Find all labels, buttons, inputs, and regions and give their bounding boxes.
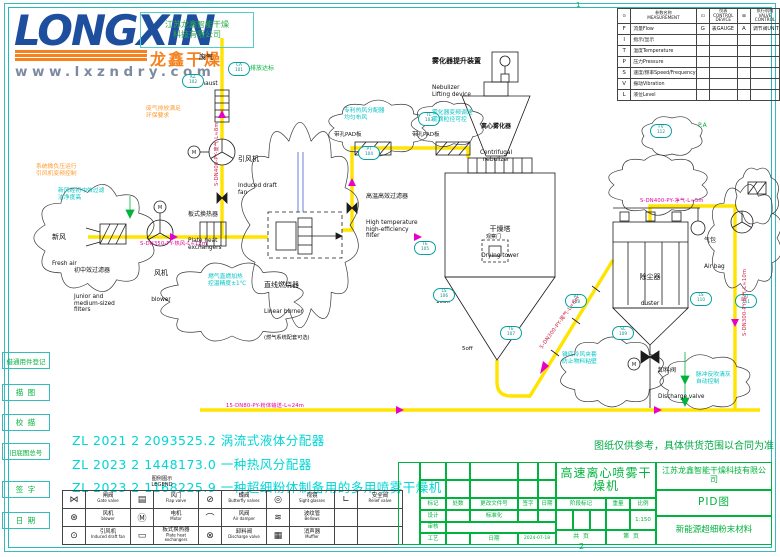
- logo-stripe: [15, 54, 147, 57]
- code-letter: A: [737, 23, 750, 34]
- margin-label-tracing: 描 图: [2, 384, 50, 401]
- code-letter: F: [618, 23, 631, 34]
- titleblock-company: 江苏龙鑫智能干燥科技有限公司: [656, 462, 772, 490]
- blower-icon: ⊛: [63, 509, 86, 527]
- margin-label-date: 日 期: [2, 512, 50, 529]
- label-duster: 除尘器 duster: [630, 254, 670, 327]
- titleblock-blank: [470, 462, 518, 480]
- titleblock-project: 新能源超细粉末材料: [656, 516, 772, 545]
- patent-line: ZL 2023 2 1448173.0 一种热风分配器: [72, 454, 312, 473]
- table-row: ⊙ 参数名称 MEASUREMENT ⊡ 仪表 CONTROL DEVICE ⊠…: [618, 9, 780, 24]
- label-blower: 风机 blower: [144, 250, 178, 323]
- col-measurement: 参数名称 MEASUREMENT: [631, 9, 696, 24]
- titleblock-doc-type: PID图: [656, 490, 772, 516]
- instrument-tag: SC 109: [612, 326, 634, 340]
- titleblock-blank: [538, 462, 556, 480]
- empty-cell: [751, 78, 780, 89]
- annotation: 锥底冷风夹套 防止物料粘壁: [562, 352, 597, 366]
- label-plate-hx: 板式换热器 Plate heat exchangers: [188, 192, 246, 271]
- code-meaning: 流量Flow: [631, 23, 696, 34]
- empty-cell: [751, 45, 780, 56]
- code-letter: G: [696, 23, 709, 34]
- titleblock-total-pages: 共 页: [556, 530, 606, 545]
- legend-cell: 蝶阀Butterfly valves: [222, 491, 267, 509]
- legend-cell: 风机blower: [86, 509, 131, 527]
- titleblock-design: 设计: [420, 510, 446, 522]
- empty-cell: [737, 56, 750, 67]
- code-letter: V: [618, 78, 631, 89]
- titleblock-blank: [446, 480, 470, 498]
- empty-cell: [696, 67, 709, 78]
- table-row: L 液位Level: [618, 89, 780, 100]
- label-off2: 5off: [462, 346, 473, 352]
- code-letter: S: [618, 67, 631, 78]
- patent-line: ZL 2021 2 2093525.2 涡流式液体分配器: [72, 430, 325, 449]
- code-meaning: 温度Temperature: [631, 45, 696, 56]
- code-meaning: 表GAUGE: [709, 23, 737, 34]
- titleblock-hdr-count: 处数: [446, 498, 470, 510]
- code-letter: P: [618, 56, 631, 67]
- pipe-tag: S-DN300-PY-尾气-L≈10m: [741, 269, 748, 336]
- annotation: 燃气直燃加热 控温精度±1℃: [208, 274, 246, 288]
- code-meaning: 液位Level: [631, 89, 696, 100]
- label-burner: 直线燃烧器 Linear burner (燃气系统配套可选): [264, 262, 348, 360]
- legend-cell: 电机Motor: [154, 509, 199, 527]
- logo-stripe: [15, 50, 147, 53]
- titleblock-stage-cell: [556, 510, 573, 530]
- empty-cell: [751, 34, 780, 45]
- legend-cell: 消声器Muffler: [290, 527, 335, 545]
- margin-label-registration: 借通用件登记: [2, 352, 50, 369]
- legend-cell: 风门Flap valve: [154, 491, 199, 509]
- motor-icon: Ⓜ: [131, 509, 154, 527]
- titleblock-hdr-file: 更改文件号: [470, 498, 518, 510]
- titleblock-blank: [538, 480, 556, 498]
- plate-hx-icon: ▭: [131, 527, 154, 545]
- induced-fan-icon: ⊙: [63, 527, 86, 545]
- label-induced-fan: 引风机 Induced draft fan: [238, 136, 296, 216]
- pipe-tag: S-DN400-PY-废气-L≈8m: [213, 122, 220, 186]
- titleblock-blank: [446, 462, 470, 480]
- empty-cell: [737, 45, 750, 56]
- empty-cell: [709, 34, 737, 45]
- titleblock-weight: 重量: [606, 498, 630, 510]
- col-symbol-icon: ⊙: [618, 9, 631, 24]
- empty-cell: [709, 67, 737, 78]
- titleblock-stage-cell: [590, 510, 606, 530]
- empty-cell: [696, 89, 709, 100]
- instrument-tag: FV 112: [650, 124, 672, 138]
- empty-cell: [709, 45, 737, 56]
- col-symbol2-icon: ⊡: [696, 9, 709, 24]
- logo-stripe: [15, 58, 147, 61]
- annotation: 雾化器变频调速 雾滴粒径可控: [432, 110, 473, 124]
- titleblock-blank: [470, 480, 518, 498]
- empty-cell: [358, 509, 403, 527]
- legend-cell: 卸料阀Discharge valve: [222, 527, 267, 545]
- linear-burner-shape: [268, 212, 342, 258]
- burner-stack-lines: [298, 152, 303, 212]
- titleblock-stage: 阶段标记: [556, 498, 606, 510]
- nebulizer-lift-shape: [492, 52, 518, 82]
- empty-cell: [709, 56, 737, 67]
- titleblock-blank: [420, 462, 446, 480]
- label-exhaust: 废气 Exhaust: [186, 34, 226, 107]
- titleblock-blank: [518, 510, 538, 522]
- pipe-tag: S-DN350-PY-热风-L≈12m: [140, 240, 207, 247]
- prefilter-shape: [86, 224, 126, 246]
- svg-text:M: M: [632, 362, 636, 368]
- label-nebulizer: 离心雾化器 Centrifugal nebulizer: [466, 104, 526, 183]
- label-sight-door: 观察门: [486, 233, 501, 240]
- titleblock-hdr-date: 日期: [538, 498, 556, 510]
- table-row: S 速度/频率Speed/Frequency: [618, 67, 780, 78]
- titleblock-hdr-mark: 标记: [420, 498, 446, 510]
- muffler-icon: ▦: [267, 527, 290, 545]
- label-pad-plate-a: 带孔PAD板: [334, 130, 361, 138]
- titleblock-audit: 审核: [420, 522, 446, 533]
- titleblock-blank: [398, 462, 420, 545]
- titleblock-standard: 标准化: [470, 510, 518, 522]
- svg-text:M: M: [192, 150, 196, 156]
- empty-cell: [737, 34, 750, 45]
- legend-row: ⊙ 引风机Induced draft fan ▭ 板式换热器Plate heat…: [63, 527, 403, 545]
- instrument-code-table: ⊙ 参数名称 MEASUREMENT ⊡ 仪表 CONTROL DEVICE ⊠…: [617, 8, 780, 101]
- label-air-bag: 气包 Air bag: [704, 218, 740, 290]
- titleblock-blank: [518, 480, 538, 498]
- titleblock-hdr-sign: 签字: [518, 498, 538, 510]
- annotation-orange: 废气排放满足 环保要求: [146, 106, 181, 120]
- discharge-valve-icon: ⊗: [199, 527, 222, 545]
- code-meaning: 振动Vibration: [631, 78, 696, 89]
- titleblock-blank: [446, 522, 556, 533]
- empty-cell: [751, 67, 780, 78]
- empty-cell: [737, 67, 750, 78]
- titleblock-scale: 比例: [630, 498, 656, 510]
- label-drying-tower: 干燥塔 Drying tower: [472, 206, 528, 279]
- legend-row: ⊛ 风机blower Ⓜ 电机Motor ⌒ 风阀Air damper ≋ 波纹…: [63, 509, 403, 527]
- empty-cell: [737, 89, 750, 100]
- legend-table: ⋈ 闸阀Gate valve ▤ 风门Flap valve ⊘ 蝶阀Butter…: [62, 490, 403, 545]
- empty-cell: [696, 45, 709, 56]
- label-pad-plate-b: 带孔PAD板: [412, 130, 439, 138]
- reference-notice: 图纸仅供参考，具体供货范围以合同为准: [594, 437, 774, 452]
- table-row: T 温度Temperature: [618, 45, 780, 56]
- empty-cell: [335, 527, 358, 545]
- sight-glass-icon: ◎: [267, 491, 290, 509]
- air-damper-icon: ⌒: [199, 509, 222, 527]
- butterfly-valve-icon: ⊘: [199, 491, 222, 509]
- empty-cell: [696, 78, 709, 89]
- empty-cell: [751, 56, 780, 67]
- table-row: I 指示/显示: [618, 34, 780, 45]
- titleblock-blank: [538, 510, 556, 522]
- legend-cell: 板式换热器Plate heat exchangers: [154, 527, 199, 545]
- annotation: 新风经初中效过滤 洁净度高: [58, 188, 104, 202]
- titleblock-weight-value: [606, 510, 630, 530]
- flap-valve-icon: ▤: [131, 491, 154, 509]
- margin-label-old-drawing-no: 旧底图总号: [2, 443, 50, 460]
- titleblock-stage-cell: [573, 510, 590, 530]
- margin-label-signature: 签 字: [2, 481, 50, 498]
- instrument-tag: TE 105: [414, 241, 436, 255]
- pid-drawing-sheet: MMM LONGXIN 龙鑫干燥 www.lxzndry.com 江苏龙鑫智能干…: [0, 0, 780, 557]
- empty-cell: [335, 509, 358, 527]
- legend-cell: 闸阀Gate valve: [86, 491, 131, 509]
- code-meaning: 调节阀UNIT: [751, 23, 780, 34]
- empty-cell: [751, 89, 780, 100]
- empty-cell: [709, 78, 737, 89]
- annotation: 专利热风分配器 均匀布风: [344, 108, 385, 122]
- code-letter: L: [618, 89, 631, 100]
- titleblock-scale-value: 1:150: [630, 510, 656, 530]
- instrument-tag: PT 104: [358, 146, 380, 160]
- svg-text:M: M: [158, 205, 162, 211]
- grid-ref-top: 1: [576, 1, 580, 9]
- annotation: 脉冲反吹清灰 自动控制: [696, 372, 731, 386]
- empty-cell: [696, 56, 709, 67]
- legend-title: 图例图示 LEGEND: [130, 476, 194, 488]
- col-control-device: 仪表 CONTROL DEVICE: [709, 9, 737, 24]
- instrument-tag: TE 107: [500, 326, 522, 340]
- code-letter: T: [618, 45, 631, 56]
- col-valve-control: 执行机构 VALVE CONTROL: [751, 9, 780, 24]
- code-meaning: 指示/显示: [631, 34, 696, 45]
- pipe-tag: S-DN400-PY-净气-L≈5m: [640, 197, 704, 204]
- instrument-tag: LS 106: [433, 288, 455, 302]
- titleblock-date-value: 2024-07-18: [518, 533, 556, 545]
- empty-cell: [709, 89, 737, 100]
- legend-cell: 引风机Induced draft fan: [86, 527, 131, 545]
- empty-cell: [696, 34, 709, 45]
- legend-cell: 风阀Air damper: [222, 509, 267, 527]
- pipe-tag: 15-DN80-PY-粉体输送-L≈24m: [226, 402, 304, 409]
- titleblock-process: 工艺: [420, 533, 446, 545]
- gate-valve-icon: ⋈: [63, 491, 86, 509]
- code-letter: I: [618, 34, 631, 45]
- legend-cell: 视镜Sight glasses: [290, 491, 335, 509]
- label-prefilter: 初中效过滤器 Junior and medium-sized filters: [74, 248, 136, 334]
- annotation-orange: 系统微负压运行 引风机变频控制: [36, 164, 77, 178]
- instrument-tag: LS 110: [690, 292, 712, 306]
- titleblock-blank: [446, 510, 470, 522]
- titleblock-product-title: 高速离心喷雾干燥机: [556, 462, 656, 498]
- legend-cell: 安全阀Relief valve: [358, 491, 403, 509]
- empty-cell: [737, 78, 750, 89]
- instrument-tag: CA 101: [228, 62, 250, 76]
- titleblock-blank: [518, 462, 538, 480]
- instrument-tag: KZ 102: [182, 74, 204, 88]
- label-pa: P.A: [698, 122, 707, 129]
- table-row: V 振动Vibration: [618, 78, 780, 89]
- titleblock-page-no: 第 页: [606, 530, 656, 545]
- table-row: F 流量Flow G 表GAUGE A 调节阀UNIT: [618, 23, 780, 34]
- code-meaning: 速度/频率Speed/Frequency: [631, 67, 696, 78]
- legend-cell: 波纹管Bellows: [290, 509, 335, 527]
- col-symbol3-icon: ⊠: [737, 9, 750, 24]
- relief-valve-icon: ∟: [335, 491, 358, 509]
- bellows-icon: ≋: [267, 509, 290, 527]
- table-row: P 压力Pressure: [618, 56, 780, 67]
- empty-cell: [358, 527, 403, 545]
- label-emission: 排放达标: [250, 63, 274, 72]
- margin-label-check-tracing: 校 描: [2, 414, 50, 431]
- titleblock-blank: [446, 533, 470, 545]
- code-meaning: 压力Pressure: [631, 56, 696, 67]
- legend-row: ⋈ 闸阀Gate valve ▤ 风门Flap valve ⊘ 蝶阀Butter…: [63, 491, 403, 509]
- titleblock-blank: [420, 480, 446, 498]
- titleblock-date-label: 日期: [470, 533, 518, 545]
